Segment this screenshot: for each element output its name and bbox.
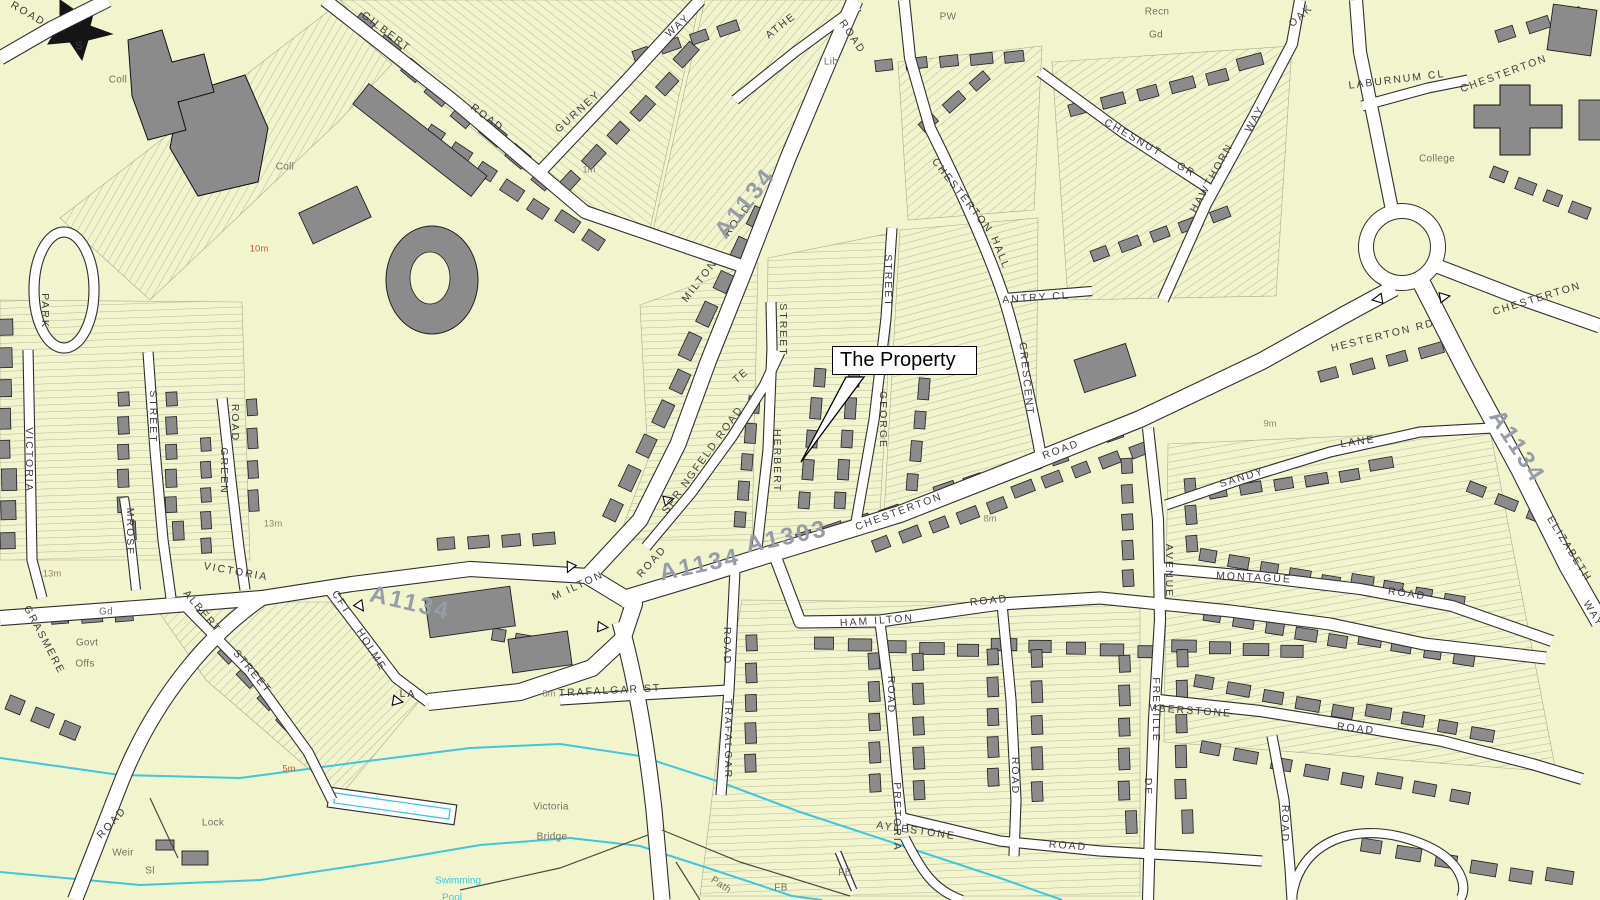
- label-coll-1: Coll: [276, 162, 294, 173]
- label-green-65: GREEN: [218, 447, 230, 494]
- map-canvas: ROADGILBERTROADGURNEYWAYATHEROADM ILTONR…: [0, 0, 1600, 900]
- label-recn-5: Recn: [1145, 7, 1170, 18]
- label-5m-1: 5m: [282, 764, 295, 775]
- label-victoria-10: Victoria: [533, 802, 569, 813]
- label-govt-8: Govt: [76, 638, 98, 649]
- label-coll-0: Coll: [109, 75, 127, 86]
- label-swimming-0: Swimming: [435, 876, 481, 887]
- label-pool-1: Pool: [442, 893, 462, 900]
- label-road-53: ROAD: [1279, 805, 1291, 843]
- label-8m-5: 8m: [542, 689, 555, 700]
- property-annotation: The Property: [832, 346, 977, 375]
- label-bridge-11: Bridge: [537, 832, 568, 843]
- label-herbert-14: HERBERT: [771, 429, 783, 493]
- label-road-44: ROAD: [721, 627, 733, 665]
- label-13m-4: 13m: [264, 519, 283, 530]
- label-pw-4: PW: [940, 12, 957, 23]
- label-street-15: STREET: [882, 254, 894, 307]
- label-avenue-36: AVENUE: [1163, 544, 1175, 598]
- label-road-50: ROAD: [1009, 757, 1021, 795]
- label-8m-6: 8m: [983, 514, 996, 525]
- label-road-64: ROAD: [229, 404, 241, 442]
- label-road-46: ROAD: [885, 676, 897, 714]
- street-map: ROADGILBERTROADGURNEYWAYATHEROADM ILTONR…: [0, 0, 1600, 900]
- label-fb-16: FB: [838, 868, 851, 879]
- label-park-67: PARK: [39, 293, 51, 329]
- label-trafalgar-45: TRAFALGAR: [722, 699, 734, 779]
- label-lib-3: Lib: [824, 57, 838, 68]
- label-10m-0: 10m: [250, 244, 269, 255]
- label-9m-7: 9m: [1263, 419, 1276, 430]
- label-1m-2: 1m: [582, 165, 595, 176]
- property-annotation-text: The Property: [840, 349, 956, 371]
- label-gd-7: Gd: [99, 607, 113, 618]
- label-s-68: S: [75, 40, 84, 52]
- label-weir-13: Weir: [112, 848, 134, 859]
- label-gd-6: Gd: [1149, 30, 1163, 41]
- label-13m-3: 13m: [43, 569, 62, 580]
- label-street-62: STREET: [147, 390, 159, 443]
- label-college-2: College: [1419, 154, 1455, 165]
- label-victoria-66: VICTORIA: [23, 427, 35, 492]
- label-offs-9: Offs: [75, 659, 94, 670]
- label-la-60: LA: [400, 688, 417, 700]
- label-mrose-63: MROSE: [124, 508, 136, 557]
- label-george-16: GEORGE: [877, 391, 889, 449]
- label-pretoria-47: PRETORIA: [891, 782, 903, 851]
- label-sl-14: Sl: [145, 866, 155, 877]
- label-lock-12: Lock: [202, 818, 225, 829]
- label-fb-17: FB: [774, 883, 787, 894]
- label-street-13: STREET: [777, 303, 789, 356]
- label-de-38: DE: [1142, 778, 1154, 797]
